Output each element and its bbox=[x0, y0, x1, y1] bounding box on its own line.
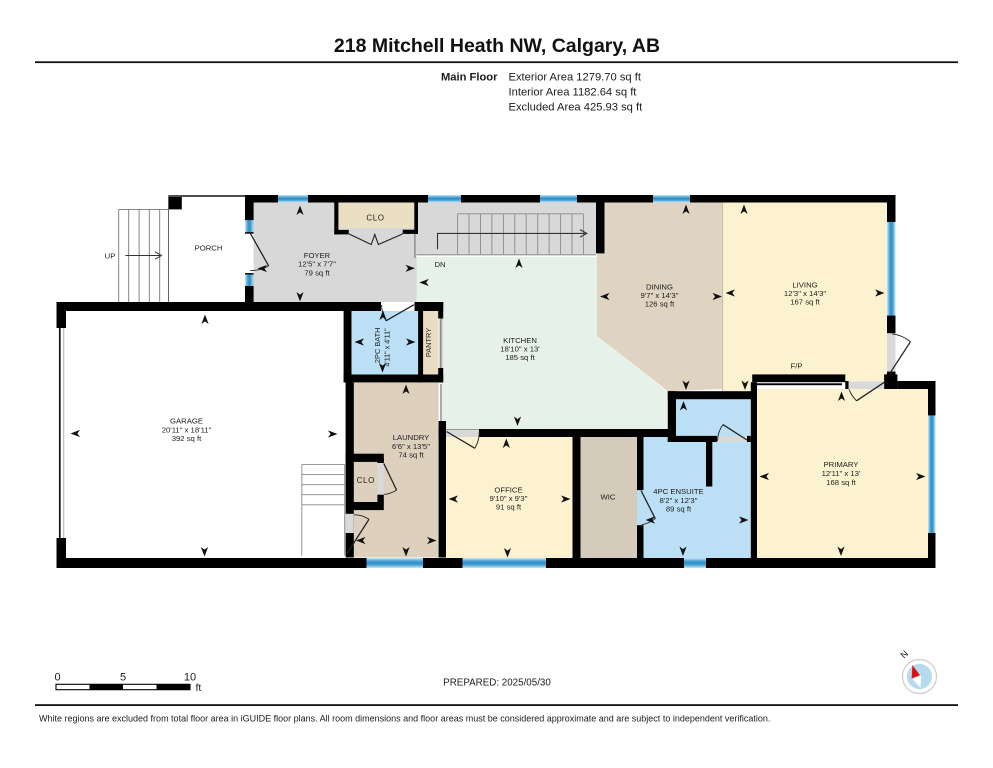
svg-text:91 sq ft: 91 sq ft bbox=[496, 503, 522, 512]
svg-text:WIC: WIC bbox=[601, 493, 616, 502]
svg-text:0: 0 bbox=[54, 672, 60, 684]
svg-text:PREPARED: 2025/05/30: PREPARED: 2025/05/30 bbox=[443, 678, 551, 689]
svg-text:218 Mitchell Heath NW, Calgary: 218 Mitchell Heath NW, Calgary, AB bbox=[334, 35, 660, 57]
svg-text:PANTRY: PANTRY bbox=[424, 328, 433, 357]
svg-text:ft: ft bbox=[196, 682, 202, 694]
svg-text:DN: DN bbox=[434, 260, 445, 269]
svg-text:10: 10 bbox=[184, 672, 196, 684]
svg-text:5: 5 bbox=[120, 672, 126, 684]
svg-text:UP: UP bbox=[105, 251, 116, 260]
svg-text:CLO: CLO bbox=[366, 214, 384, 223]
svg-text:185 sq ft: 185 sq ft bbox=[505, 353, 535, 362]
svg-text:392 sq ft: 392 sq ft bbox=[172, 434, 202, 443]
svg-text:89 sq ft: 89 sq ft bbox=[666, 504, 692, 513]
svg-text:PORCH: PORCH bbox=[195, 244, 223, 253]
svg-text:CLO: CLO bbox=[357, 476, 375, 485]
svg-text:74 sq ft: 74 sq ft bbox=[398, 450, 424, 459]
svg-text:12'11" x 13': 12'11" x 13' bbox=[822, 469, 861, 478]
svg-text:F/P: F/P bbox=[791, 362, 803, 371]
svg-text:Excluded Area 425.93 sq ft: Excluded Area 425.93 sq ft bbox=[509, 101, 644, 113]
svg-text:79 sq ft: 79 sq ft bbox=[304, 268, 330, 277]
svg-text:2PC BATH: 2PC BATH bbox=[373, 328, 382, 364]
svg-text:Exterior Area 1279.70 sq ft: Exterior Area 1279.70 sq ft bbox=[509, 71, 642, 83]
svg-text:Main Floor: Main Floor bbox=[441, 71, 498, 83]
svg-text:126 sq ft: 126 sq ft bbox=[645, 300, 675, 309]
svg-text:4'11" x 4'11": 4'11" x 4'11" bbox=[383, 328, 392, 367]
svg-text:168 sq ft: 168 sq ft bbox=[826, 478, 856, 487]
svg-text:167 sq ft: 167 sq ft bbox=[790, 298, 820, 307]
svg-text:White regions are excluded fro: White regions are excluded from total fl… bbox=[39, 714, 770, 724]
svg-text:PRIMARY: PRIMARY bbox=[824, 460, 859, 469]
svg-text:Interior Area 1182.64 sq ft: Interior Area 1182.64 sq ft bbox=[509, 86, 638, 98]
